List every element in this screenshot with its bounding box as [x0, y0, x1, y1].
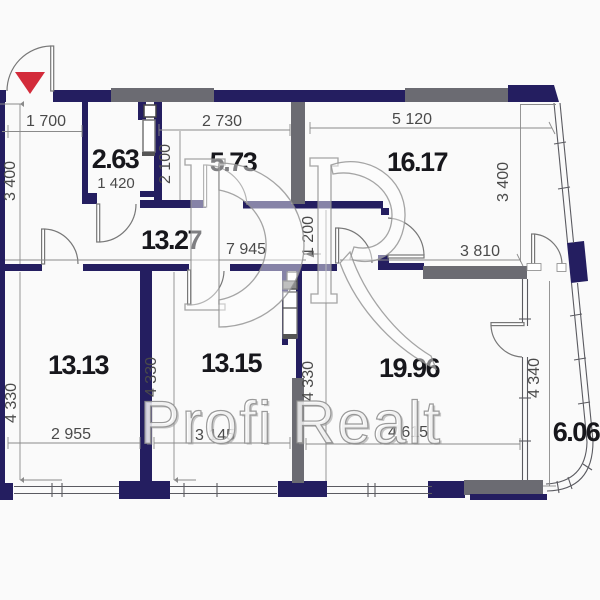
svg-text:2 730: 2 730 [202, 113, 242, 130]
svg-text:4 340: 4 340 [526, 358, 543, 398]
svg-text:2 955: 2 955 [51, 426, 91, 443]
svg-text:6.06: 6.06 [553, 417, 600, 447]
svg-text:3 400: 3 400 [2, 161, 19, 201]
svg-text:2.63: 2.63 [92, 144, 140, 174]
svg-text:4 330: 4 330 [3, 383, 20, 423]
svg-text:13.15: 13.15 [201, 348, 263, 378]
svg-text:1 420: 1 420 [97, 175, 135, 192]
svg-text:1 700: 1 700 [26, 113, 66, 130]
svg-text:13.13: 13.13 [48, 350, 110, 380]
svg-text:7 945: 7 945 [226, 241, 266, 258]
svg-text:5 120: 5 120 [392, 111, 432, 128]
svg-text:3 810: 3 810 [460, 243, 500, 260]
svg-text:2 100: 2 100 [157, 144, 174, 184]
svg-text:3 400: 3 400 [495, 162, 512, 202]
svg-text:16.17: 16.17 [387, 147, 448, 177]
